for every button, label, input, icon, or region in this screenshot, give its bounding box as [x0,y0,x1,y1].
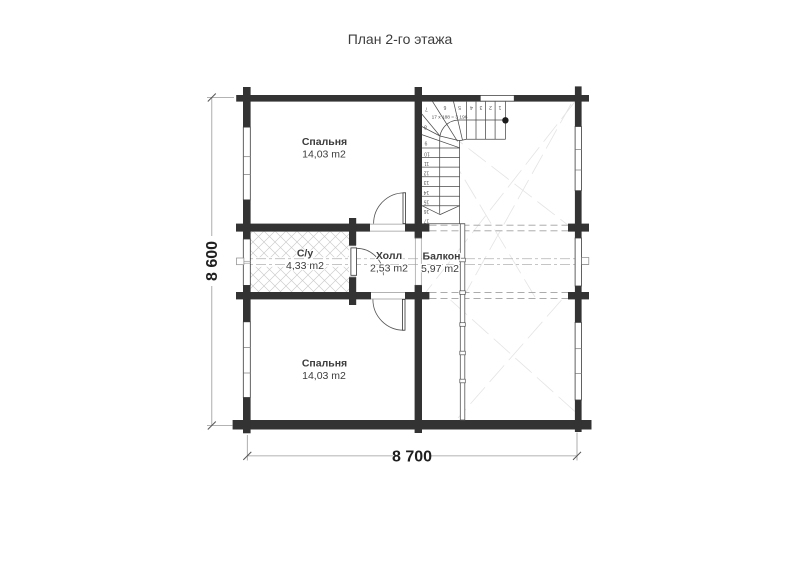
svg-text:Холл: Холл [376,250,402,262]
svg-text:17 x 188 = 3 196: 17 x 188 = 3 196 [432,114,468,120]
svg-text:5,97 m2: 5,97 m2 [421,263,459,275]
svg-text:Спальня: Спальня [302,136,347,148]
svg-text:2,53 m2: 2,53 m2 [370,262,408,274]
svg-text:9: 9 [424,140,427,146]
svg-text:17: 17 [424,218,430,224]
svg-text:Спальня: Спальня [302,358,347,370]
svg-text:14,03 m2: 14,03 m2 [302,149,346,161]
svg-text:Балкон: Балкон [423,251,461,263]
svg-text:11: 11 [424,160,429,166]
svg-text:4,33 m2: 4,33 m2 [286,260,324,272]
svg-text:8: 8 [424,124,427,130]
svg-text:1: 1 [498,104,501,110]
svg-text:2: 2 [489,104,492,110]
svg-text:С/у: С/у [297,248,314,260]
svg-text:3: 3 [479,104,482,110]
svg-text:14,03 m2: 14,03 m2 [302,370,346,382]
svg-text:8 700: 8 700 [392,449,432,466]
svg-text:10: 10 [424,150,430,156]
svg-text:8 600: 8 600 [204,241,221,281]
svg-text:План 2-го этажа: План 2-го этажа [348,31,453,47]
svg-text:12: 12 [424,170,430,176]
svg-text:7: 7 [425,106,428,112]
svg-text:16: 16 [424,208,430,214]
svg-text:4: 4 [470,104,473,110]
svg-text:15: 15 [424,198,430,204]
svg-text:13: 13 [424,179,430,185]
svg-text:14: 14 [424,189,430,195]
svg-text:6: 6 [443,104,446,110]
svg-text:5: 5 [458,104,461,110]
